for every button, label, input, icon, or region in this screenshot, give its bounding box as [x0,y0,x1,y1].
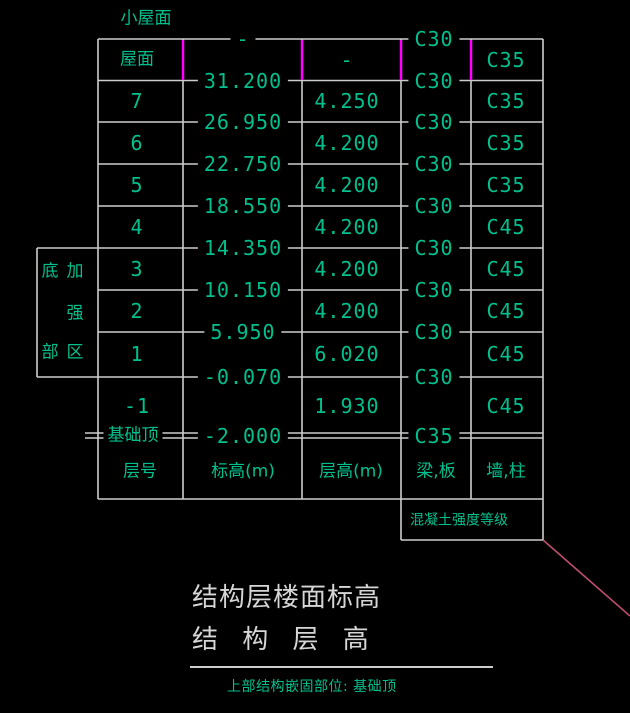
elevation-value: -2.000 [198,425,288,447]
left-box-char: 部 [42,344,59,363]
floor-cell: 2 [130,300,143,322]
left-box-char: 底 [42,263,59,282]
floor-cell: 7 [130,90,143,112]
elevation-value: -0.070 [198,366,288,388]
col-header-elevation: 标高(m) [211,463,275,482]
beam-slab-grade-value: C30 [408,237,459,259]
floor-cell: 3 [130,258,143,280]
foundation-top-label: 基础顶 [104,426,163,445]
floor-cell: 5 [130,174,143,196]
col-header-floor: 层号 [123,463,157,482]
wall-column-grade-cell: C45 [486,300,525,322]
story-height-cell: 4.200 [314,132,379,154]
col-header-storyheight: 层高(m) [319,463,383,482]
story-height-cell: - [340,49,353,71]
wall-column-grade-cell: C35 [486,132,525,154]
floor-cell: -1 [124,395,150,417]
left-box-char: 强 [67,305,84,324]
beam-slab-grade-value: C30 [408,366,459,388]
wall-column-grade-cell: C35 [486,49,525,71]
beam-slab-grade-value: C30 [408,111,459,133]
beam-slab-grade-value: C30 [408,70,459,92]
table-grid-lines [37,39,543,540]
beam-slab-grade-value: C30 [408,153,459,175]
beam-slab-grade-value: C35 [408,425,459,447]
wall-column-grade-cell: C35 [486,90,525,112]
story-height-cell: 6.020 [314,343,379,365]
story-height-cell: 4.200 [314,174,379,196]
cad-drawing: 小屋面 屋面-C3574.250C3564.200C3554.200C3544.… [0,0,630,713]
elevation-value: 18.550 [198,195,288,217]
elevation-value: 14.350 [198,237,288,259]
elevation-value: 31.200 [198,70,288,92]
left-box-char: 区 [67,344,84,363]
elevation-value: - [230,28,255,50]
wall-column-grade-cell: C45 [486,258,525,280]
floor-cell: 4 [130,216,143,238]
col-header-wall-column: 墙,柱 [486,463,525,482]
footer-title-line2: 结 构 层 高 [192,626,377,656]
elevation-value: 26.950 [198,111,288,133]
elevation-value: 10.150 [198,279,288,301]
elevation-value: 5.950 [204,321,281,343]
beam-slab-grade-value: C30 [408,321,459,343]
wall-column-grade-cell: C45 [486,343,525,365]
concrete-grade-label: 混凝土强度等级 [410,513,508,528]
beam-slab-grade-value: C30 [408,28,459,50]
floor-cell: 屋面 [120,51,154,70]
col-header-beam-slab: 梁,板 [416,463,455,482]
elevation-value: 22.750 [198,153,288,175]
footer-note: 上部结构嵌固部位: 基础顶 [227,679,397,695]
story-height-cell: 1.930 [314,395,379,417]
story-height-cell: 4.250 [314,90,379,112]
roof-label: 小屋面 [121,10,172,29]
floor-cell: 6 [130,132,143,154]
wall-column-grade-cell: C35 [486,174,525,196]
story-height-cell: 4.200 [314,216,379,238]
leader-line [543,540,630,616]
story-height-cell: 4.200 [314,300,379,322]
wall-column-grade-cell: C45 [486,216,525,238]
beam-slab-grade-value: C30 [408,279,459,301]
story-height-cell: 4.200 [314,258,379,280]
footer-title-line1: 结构层楼面标高 [192,584,381,614]
wall-column-grade-cell: C45 [486,395,525,417]
beam-slab-grade-value: C30 [408,195,459,217]
left-box-char: 加 [67,263,84,282]
floor-cell: 1 [130,343,143,365]
